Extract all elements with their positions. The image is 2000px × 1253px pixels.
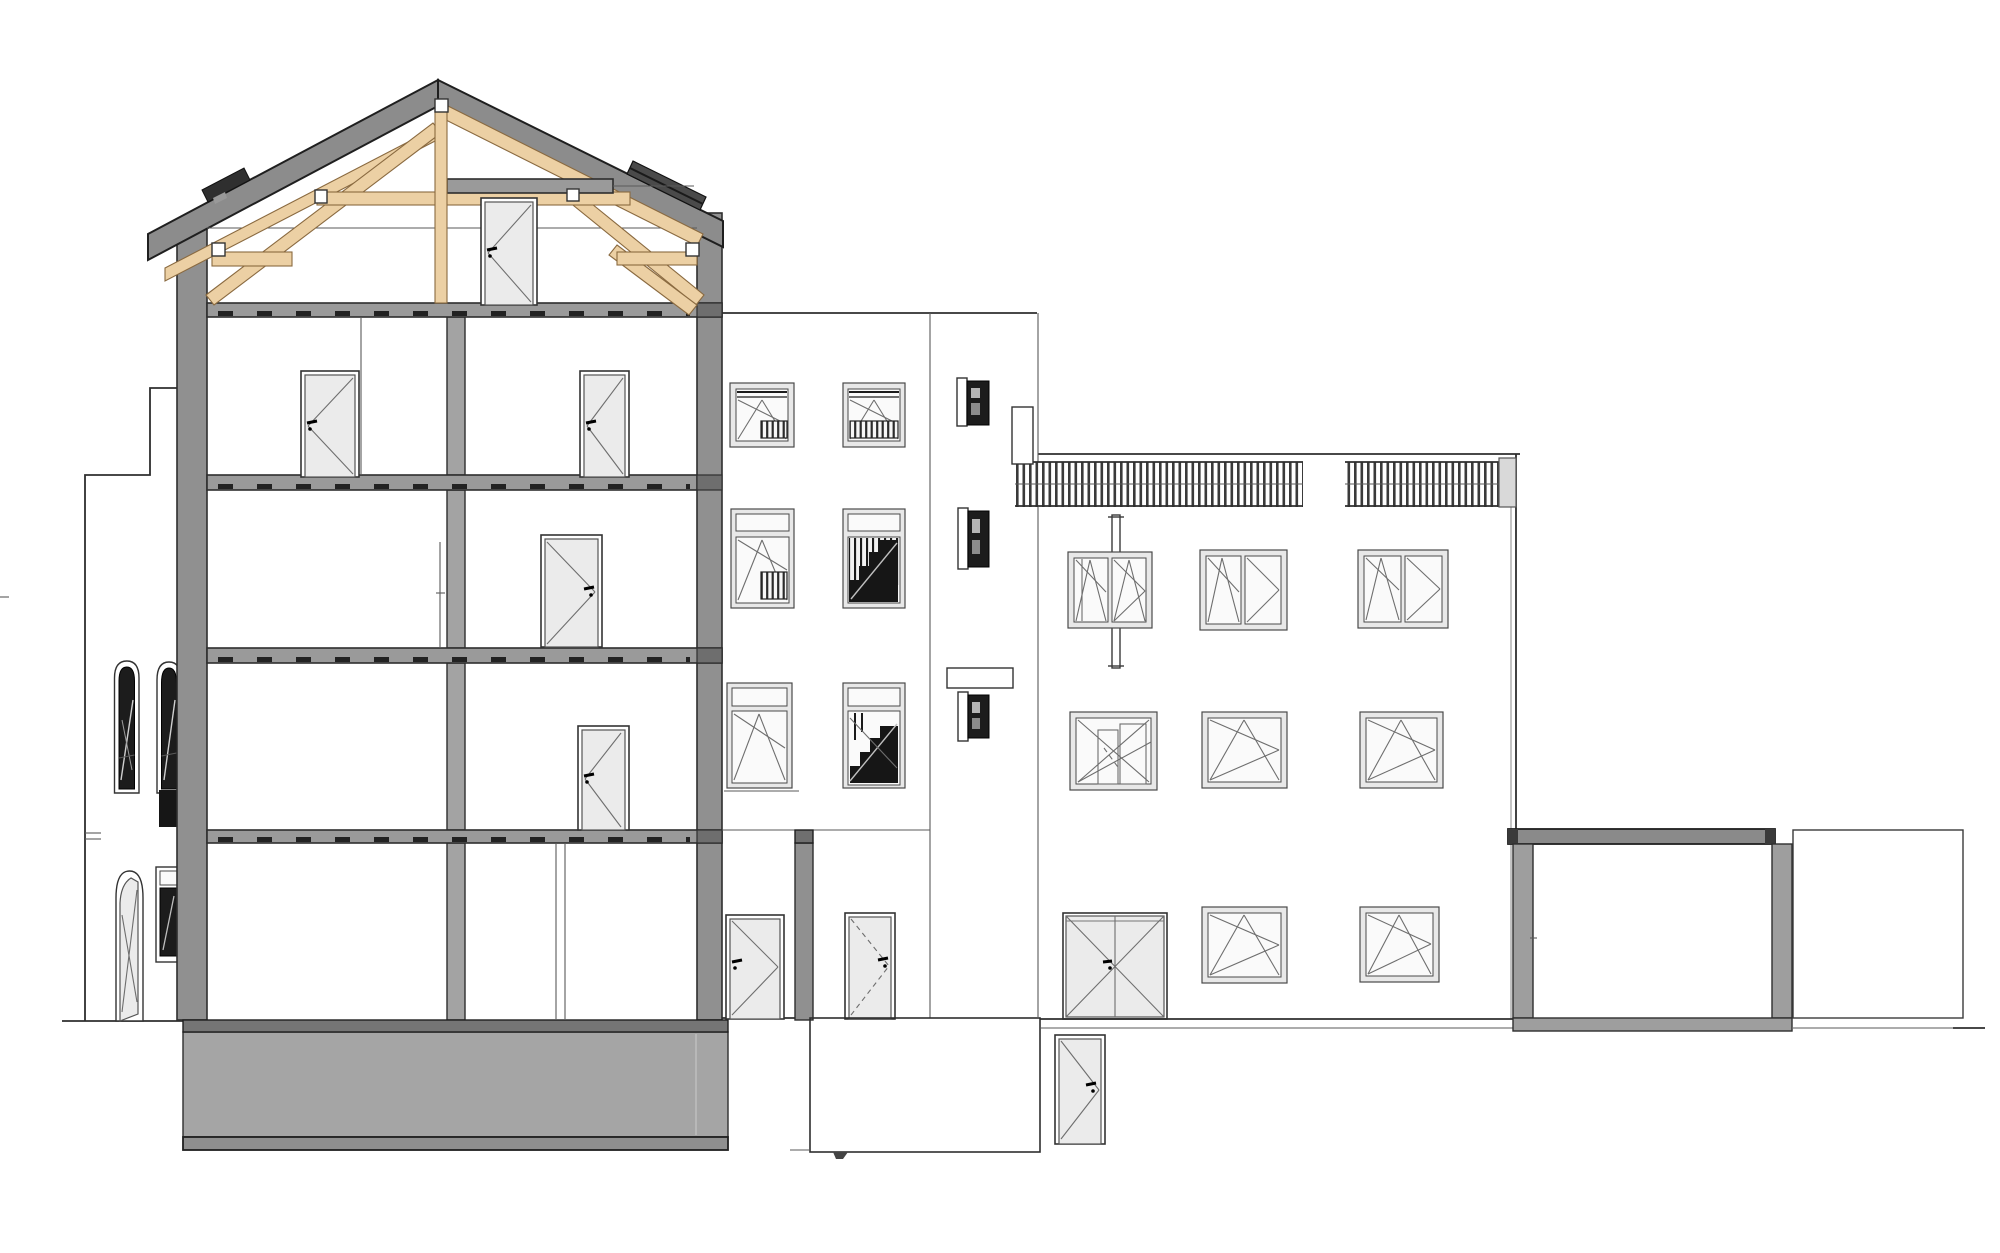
door-l4-right — [580, 371, 629, 477]
window-c1 — [724, 683, 799, 791]
window-upper-1 — [1068, 552, 1152, 628]
window-middle-3 — [1360, 712, 1443, 788]
window-ground-2 — [1202, 907, 1287, 983]
door-l2 — [578, 726, 629, 830]
window-middle-2 — [1202, 712, 1287, 788]
basement-door — [1055, 1035, 1105, 1144]
annex-roof-slab — [1508, 829, 1775, 844]
attic-door — [481, 198, 537, 305]
slit-window-2 — [958, 508, 989, 569]
arched-window-1 — [115, 661, 140, 793]
rafter-right — [438, 104, 703, 246]
outline-building — [1793, 830, 1985, 1028]
window-a2 — [843, 383, 905, 447]
purlin-beam — [447, 179, 613, 193]
outline-building-body — [1793, 830, 1963, 1018]
ledge — [947, 668, 1013, 688]
basement-step — [833, 1152, 848, 1159]
rear-annex — [1508, 829, 1792, 1031]
juliet-railing — [761, 421, 787, 438]
window-a1 — [730, 383, 794, 447]
annex-wall-right — [1772, 844, 1792, 1018]
entrance-door-a — [726, 915, 784, 1019]
stair-window-c2 — [843, 683, 905, 788]
annex-roof-cap-right — [1765, 829, 1775, 844]
main-section-building — [148, 80, 728, 1150]
window-upper-3 — [1358, 550, 1448, 628]
annex-floor-slab — [1513, 1018, 1792, 1031]
slit-window-1 — [957, 378, 989, 426]
annex-wall-left — [1513, 844, 1533, 1018]
window-ground-3 — [1360, 907, 1439, 982]
drawing-canvas — [0, 0, 2000, 1253]
stair-window-b2 — [843, 509, 905, 608]
cut-wall-center — [447, 317, 465, 1020]
cut-wall-left — [177, 226, 207, 1020]
foundation-block — [183, 1020, 728, 1150]
window-middle-1 — [1070, 712, 1157, 790]
porch-cut-wall — [795, 830, 813, 1020]
annex-roof-cap-left — [1508, 829, 1518, 844]
beam-right — [617, 252, 697, 265]
middle-stair-building — [722, 313, 1040, 1159]
terrace-railing — [1015, 458, 1516, 507]
door-l4-left — [301, 371, 359, 477]
railing-end-post — [1499, 458, 1516, 507]
arched-entrance-door — [116, 871, 143, 1021]
juliet-railing — [761, 572, 787, 599]
chimney — [1012, 407, 1033, 464]
window-b1 — [731, 509, 794, 608]
cut-wall-right — [697, 213, 722, 1020]
collar-tie — [317, 192, 630, 205]
window-upper-2 — [1200, 550, 1287, 630]
entrance-door-b-dashed — [845, 913, 895, 1019]
king-post — [435, 100, 447, 303]
left-annex-building — [0, 388, 183, 1021]
garage-door — [1063, 913, 1167, 1019]
right-building — [1012, 313, 1520, 1144]
slit-window-3 — [958, 692, 989, 741]
basement-outline — [790, 1018, 1040, 1159]
section-elevation-svg — [0, 0, 2000, 1253]
juliet-railing — [850, 421, 898, 438]
door-l3 — [541, 535, 602, 647]
